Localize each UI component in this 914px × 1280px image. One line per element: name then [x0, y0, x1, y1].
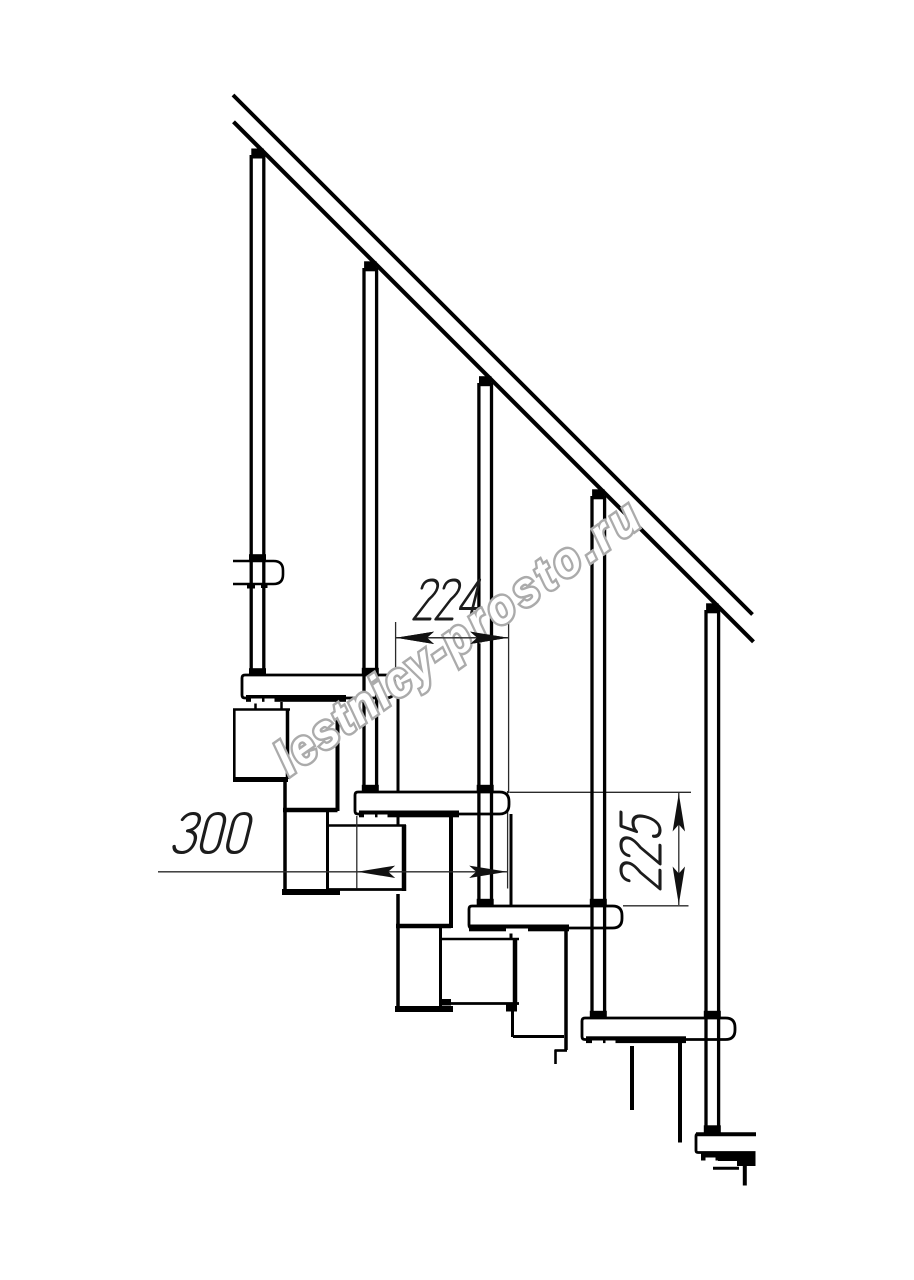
svg-text:lestnicy-prosto.ru: lestnicy-prosto.ru [264, 486, 653, 784]
